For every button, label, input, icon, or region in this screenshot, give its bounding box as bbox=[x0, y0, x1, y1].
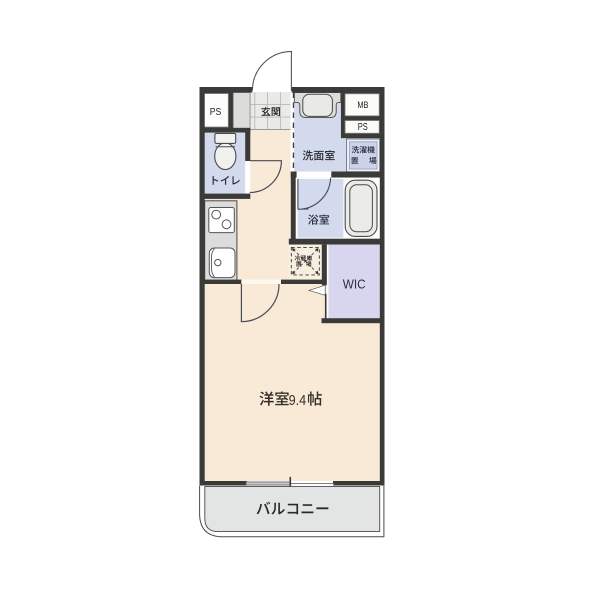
svg-text:WIC: WIC bbox=[343, 277, 366, 292]
svg-text:PS: PS bbox=[210, 107, 222, 118]
svg-text:PS: PS bbox=[358, 122, 368, 133]
svg-text:MB: MB bbox=[357, 100, 368, 111]
svg-text:9.4: 9.4 bbox=[289, 392, 307, 409]
